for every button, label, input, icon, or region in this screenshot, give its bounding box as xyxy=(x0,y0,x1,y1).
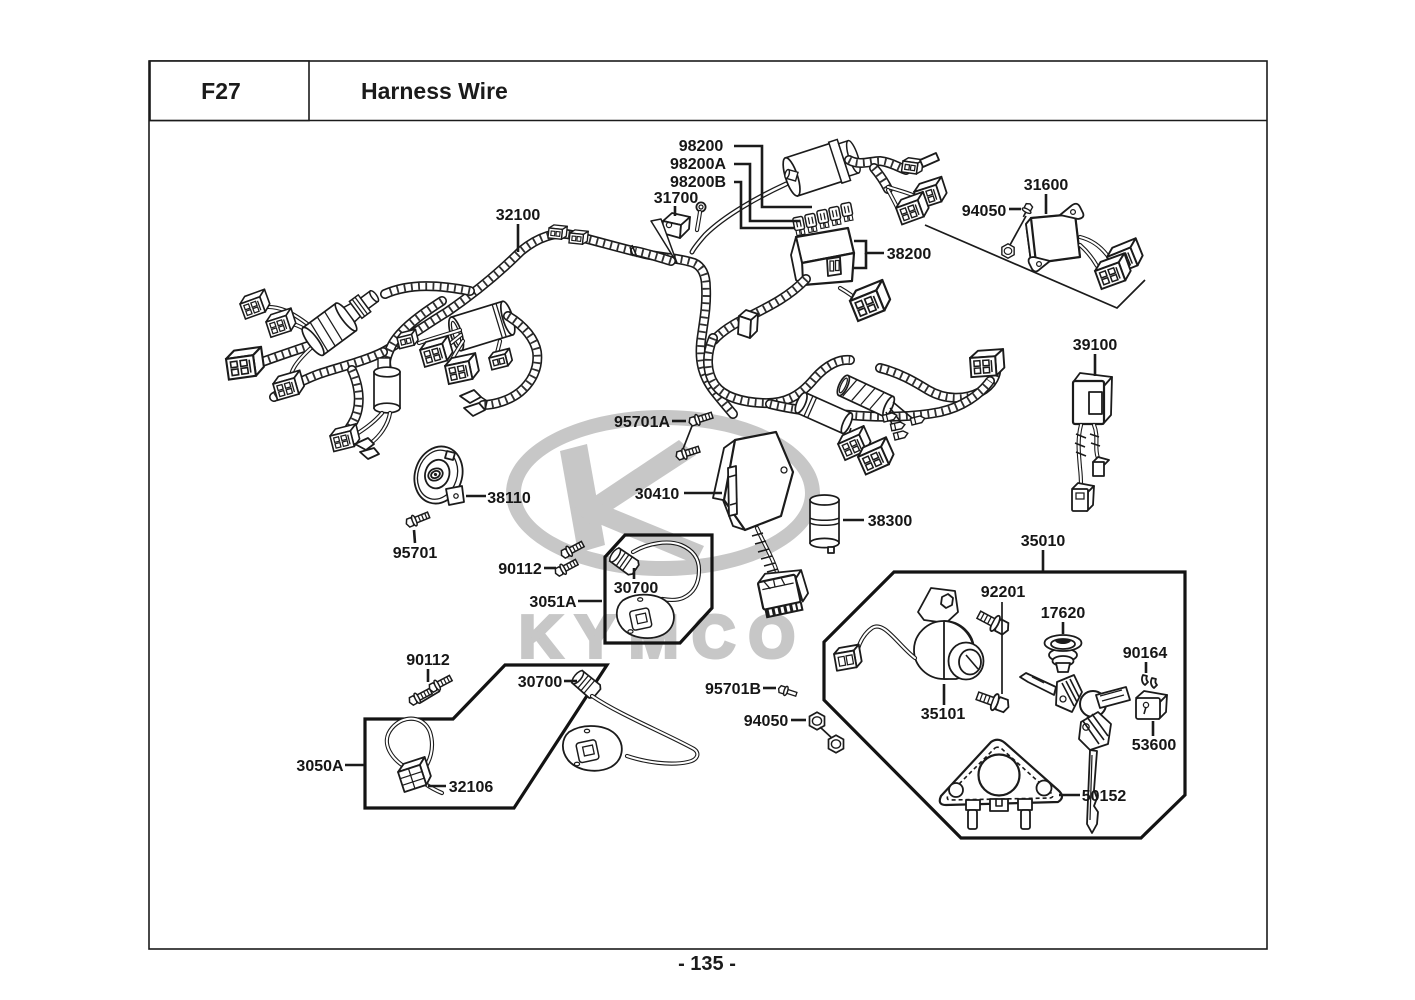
svg-text:3051A: 3051A xyxy=(529,594,577,611)
svg-text:94050: 94050 xyxy=(744,713,789,730)
svg-text:39100: 39100 xyxy=(1073,337,1118,354)
svg-text:Harness Wire: Harness Wire xyxy=(361,78,508,104)
svg-text:90112: 90112 xyxy=(406,652,450,669)
svg-text:92201: 92201 xyxy=(981,584,1026,601)
svg-text:38110: 38110 xyxy=(487,490,531,507)
svg-text:98200: 98200 xyxy=(679,138,724,155)
svg-text:30700: 30700 xyxy=(518,674,563,691)
svg-text:53600: 53600 xyxy=(1132,737,1177,754)
svg-text:90112: 90112 xyxy=(498,561,542,578)
svg-text:35010: 35010 xyxy=(1021,533,1066,550)
svg-text:17620: 17620 xyxy=(1041,605,1086,622)
svg-text:38300: 38300 xyxy=(868,513,913,530)
svg-text:F27: F27 xyxy=(201,78,241,104)
svg-text:90164: 90164 xyxy=(1123,645,1168,662)
svg-text:35101: 35101 xyxy=(921,706,966,723)
svg-text:32100: 32100 xyxy=(496,207,541,224)
svg-text:95701B: 95701B xyxy=(705,681,761,698)
svg-text:30700: 30700 xyxy=(614,580,659,597)
svg-text:95701A: 95701A xyxy=(614,414,670,431)
svg-text:98200A: 98200A xyxy=(670,156,726,173)
svg-text:31600: 31600 xyxy=(1024,177,1069,194)
svg-text:31700: 31700 xyxy=(654,190,699,207)
svg-text:50152: 50152 xyxy=(1082,788,1127,805)
svg-text:- 135 -: - 135 - xyxy=(678,953,736,975)
svg-text:38200: 38200 xyxy=(887,246,932,263)
svg-text:32106: 32106 xyxy=(449,779,494,796)
svg-text:95701: 95701 xyxy=(393,545,438,562)
svg-text:94050: 94050 xyxy=(962,203,1007,220)
svg-text:98200B: 98200B xyxy=(670,174,726,191)
svg-text:30410: 30410 xyxy=(635,486,680,503)
svg-text:3050A: 3050A xyxy=(296,758,344,775)
